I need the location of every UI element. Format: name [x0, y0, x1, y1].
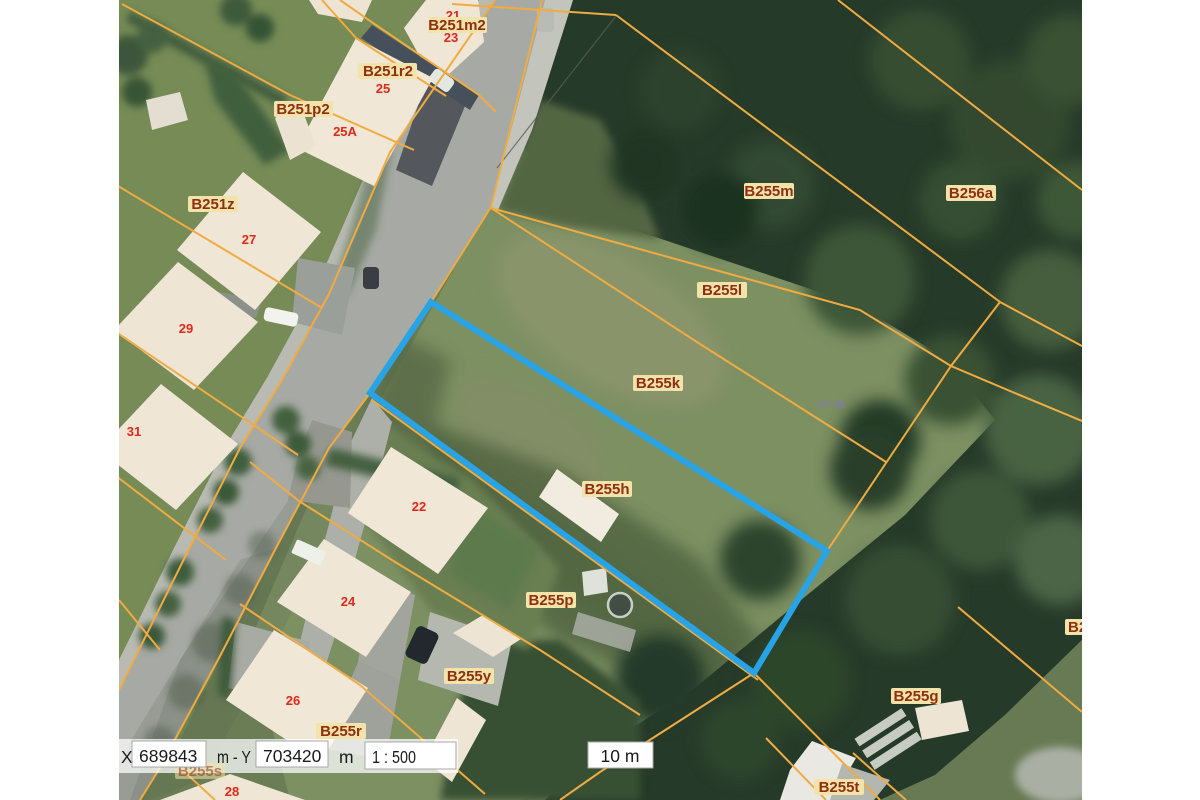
- svg-text:m: m: [339, 747, 354, 767]
- svg-text:703420: 703420: [263, 746, 322, 766]
- svg-text:B255m: B255m: [744, 183, 793, 200]
- svg-text:B251p2: B251p2: [276, 101, 329, 118]
- svg-text:1 : 500: 1 : 500: [372, 747, 416, 767]
- svg-text:B255h: B255h: [584, 481, 629, 498]
- svg-text:m - Y: m - Y: [217, 747, 251, 767]
- svg-text:23: 23: [444, 30, 458, 45]
- svg-text:29: 29: [179, 321, 193, 336]
- svg-text:22: 22: [412, 499, 426, 514]
- svg-text:24: 24: [341, 594, 356, 609]
- svg-text:B255r: B255r: [320, 723, 362, 740]
- svg-text:B251r2: B251r2: [363, 63, 413, 80]
- svg-text:B255l: B255l: [702, 282, 742, 299]
- svg-text:B255k: B255k: [636, 375, 681, 392]
- svg-text:B255g: B255g: [893, 688, 938, 705]
- svg-text:B255p: B255p: [528, 592, 573, 609]
- svg-text:27: 27: [242, 232, 256, 247]
- svg-text:x¹⁹ 16: x¹⁹ 16: [818, 400, 845, 411]
- svg-text:25A: 25A: [333, 124, 357, 139]
- svg-text:689843: 689843: [139, 746, 197, 766]
- svg-text:25: 25: [376, 81, 390, 96]
- svg-text:X: X: [121, 747, 133, 767]
- svg-text:B255y: B255y: [447, 668, 492, 685]
- svg-text:B251z: B251z: [191, 196, 234, 213]
- svg-text:B256a: B256a: [949, 185, 994, 202]
- svg-text:28: 28: [225, 784, 239, 799]
- svg-text:31: 31: [127, 424, 141, 439]
- svg-text:10 m: 10 m: [601, 746, 640, 766]
- svg-text:B255t: B255t: [819, 779, 860, 796]
- svg-text:26: 26: [286, 693, 300, 708]
